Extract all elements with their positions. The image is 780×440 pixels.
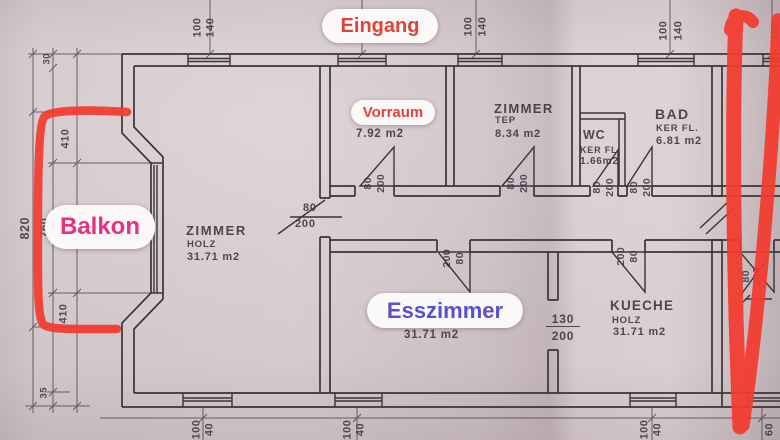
room-area-esszimmer: 31.71 m2 xyxy=(404,330,459,342)
dim-door-zimmer-left-w: 80 xyxy=(303,203,317,214)
room-floor-bad: KER FL. xyxy=(656,124,699,134)
dim-bottom-window1-h: 40 xyxy=(205,408,216,440)
dim-bottom-window1-w: 100 xyxy=(192,408,203,440)
dim-top-window3-w: 100 xyxy=(659,9,670,53)
room-area-kueche: 31.71 m2 xyxy=(613,327,666,338)
dim-door-bad-h: 200 xyxy=(642,165,653,209)
room-floor-zimmer-small: TEP xyxy=(495,116,516,126)
dim-bottom-window2-w: 100 xyxy=(343,408,354,440)
dim-left-410-upper: 410 xyxy=(61,117,72,161)
dim-door-zimmer-small-h: 200 xyxy=(519,161,530,205)
dim-left-820: 820 xyxy=(19,206,32,250)
dim-door-vorraum-h: 200 xyxy=(376,161,387,205)
dim-top-window4-w: 100 xyxy=(771,9,780,53)
dim-bottom-window2-h: 40 xyxy=(356,408,367,440)
dim-door-east-h: 200 xyxy=(752,254,763,298)
dim-door-east-w: 80 xyxy=(741,254,752,298)
room-name-kueche: KUECHE xyxy=(610,299,674,313)
dim-door-wc-w: 80 xyxy=(592,165,603,209)
dim-top-window2-w: 100 xyxy=(464,5,475,49)
dim-door-wc-h: 200 xyxy=(605,165,616,209)
dim-passage-fraction-bar xyxy=(546,326,580,327)
plan-text-layer: ZIMMER HOLZ 31.71 m2 TEP 7.92 m2 ZIMMER … xyxy=(0,0,780,440)
room-area-zimmer-small: 8.34 m2 xyxy=(495,129,541,140)
room-name-zimmer-left: ZIMMER xyxy=(186,224,247,237)
room-area-vorraum: 7.92 m2 xyxy=(356,129,404,141)
dim-door-kueche-w: 200 xyxy=(616,234,627,278)
room-floor-zimmer-left: HOLZ xyxy=(187,240,216,250)
dim-top-window2-h: 140 xyxy=(478,5,489,49)
dim-left-35: 35 xyxy=(39,371,49,415)
dim-passage-w: 130 xyxy=(548,313,578,325)
floorplan-photo: ZIMMER HOLZ 31.71 m2 TEP 7.92 m2 ZIMMER … xyxy=(0,0,780,440)
dim-door-esszimmer-w: 200 xyxy=(442,236,453,280)
dim-top-window1-h: 140 xyxy=(206,6,217,50)
room-name-zimmer-small: ZIMMER xyxy=(494,102,554,115)
dim-bottom-window4-w: 60 xyxy=(765,408,776,440)
dim-top-window3-h: 140 xyxy=(674,9,685,53)
room-area-bad: 6.81 m2 xyxy=(656,136,702,147)
dim-passage-h: 200 xyxy=(548,330,578,342)
dim-left-410-lower: 410 xyxy=(59,292,70,336)
dim-door-esszimmer-h: 80 xyxy=(455,236,466,280)
room-area-zimmer-left: 31.71 m2 xyxy=(187,252,240,263)
dim-door-kueche-h: 80 xyxy=(629,234,640,278)
dim-left-760: 760 xyxy=(40,206,51,250)
room-name-bad: BAD xyxy=(655,107,690,121)
room-floor-vorraum: TEP xyxy=(359,118,379,127)
dim-door-zimmer-left-h: 200 xyxy=(295,219,316,230)
dim-door-bad-w: 80 xyxy=(629,165,640,209)
room-name-wc: WC xyxy=(583,129,605,142)
dim-top-window1-w: 100 xyxy=(193,6,204,50)
room-floor-wc: KER FL xyxy=(580,146,617,155)
dim-bottom-window3-w: 100 xyxy=(640,408,651,440)
room-floor-kueche: HOLZ xyxy=(612,316,641,326)
dim-left-30: 30 xyxy=(42,37,52,81)
dim-bottom-window3-h: 40 xyxy=(653,408,664,440)
dim-door-vorraum-w: 80 xyxy=(363,161,374,205)
dim-door-zimmer-small-w: 80 xyxy=(506,161,517,205)
